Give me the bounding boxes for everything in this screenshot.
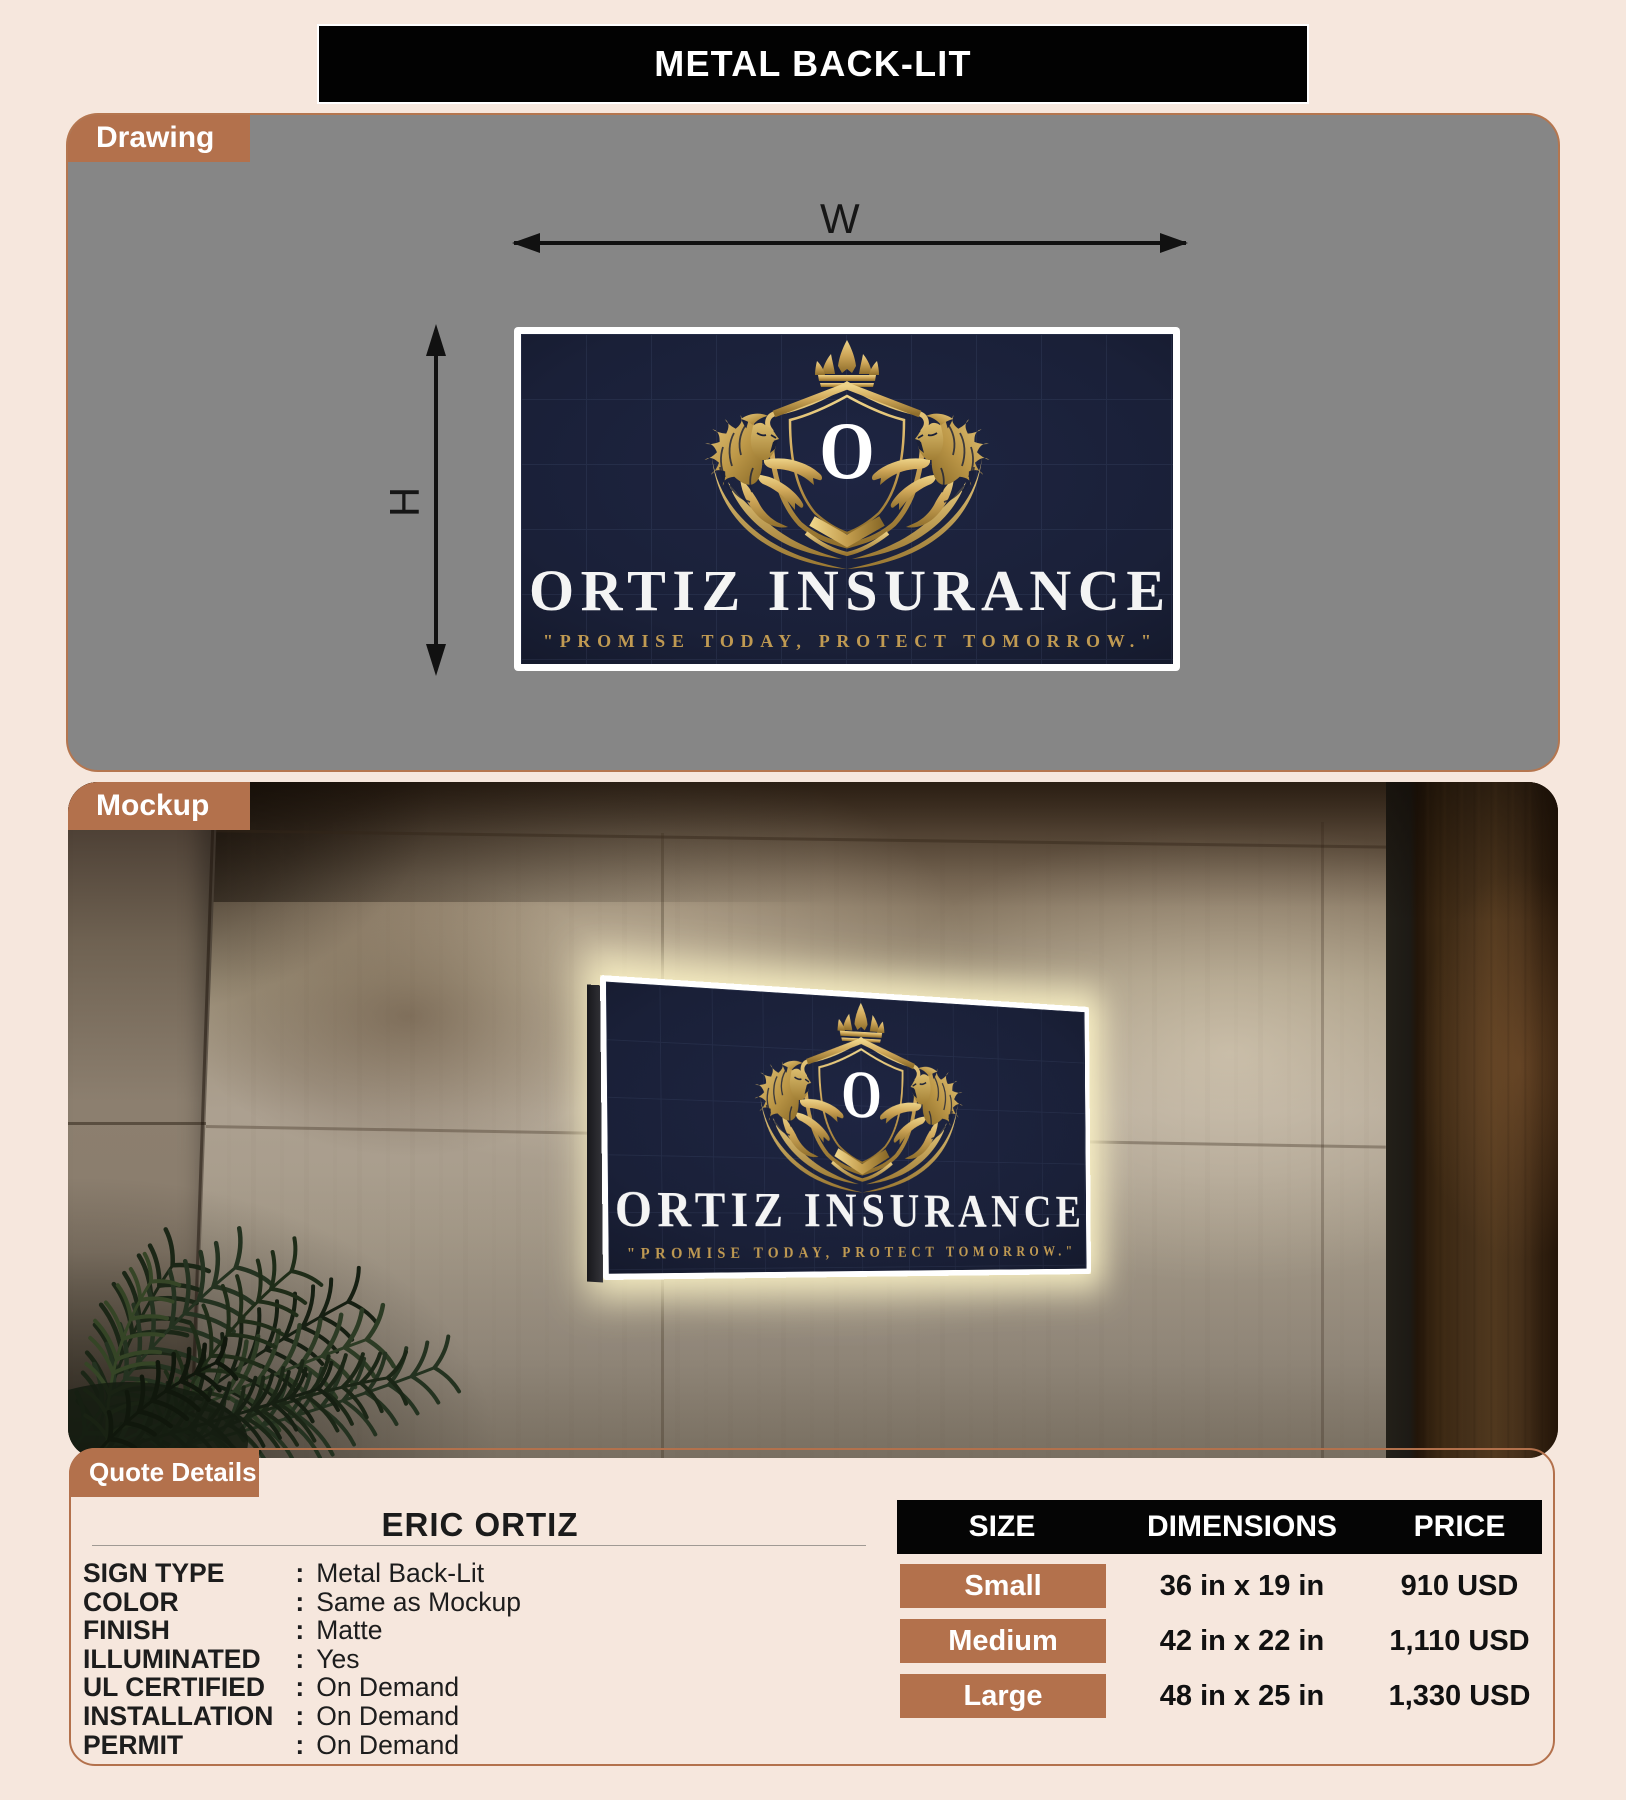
svg-text:O: O <box>819 405 874 496</box>
svg-text:O: O <box>841 1057 882 1134</box>
svg-text:ORTIZ INSURANCE: ORTIZ INSURANCE <box>615 1180 1082 1237</box>
